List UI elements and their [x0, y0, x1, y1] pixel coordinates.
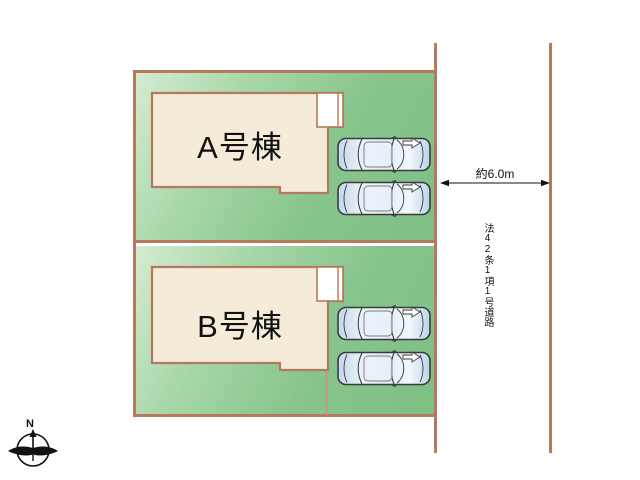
road-name-label: 法42条1項1号道路	[482, 223, 493, 333]
site-plan-page: A号棟 B号棟 約6.0m 法42条1項1号道路 N	[0, 0, 640, 480]
road-edge-line-far	[549, 43, 552, 453]
north-label: N	[26, 418, 34, 430]
road-width-label: 約6.0m	[453, 165, 537, 182]
building-b-label: B号棟	[165, 301, 315, 346]
road-edge-line-near	[434, 43, 437, 453]
compass-icon	[8, 429, 58, 466]
building-a-label: A号棟	[165, 122, 315, 167]
